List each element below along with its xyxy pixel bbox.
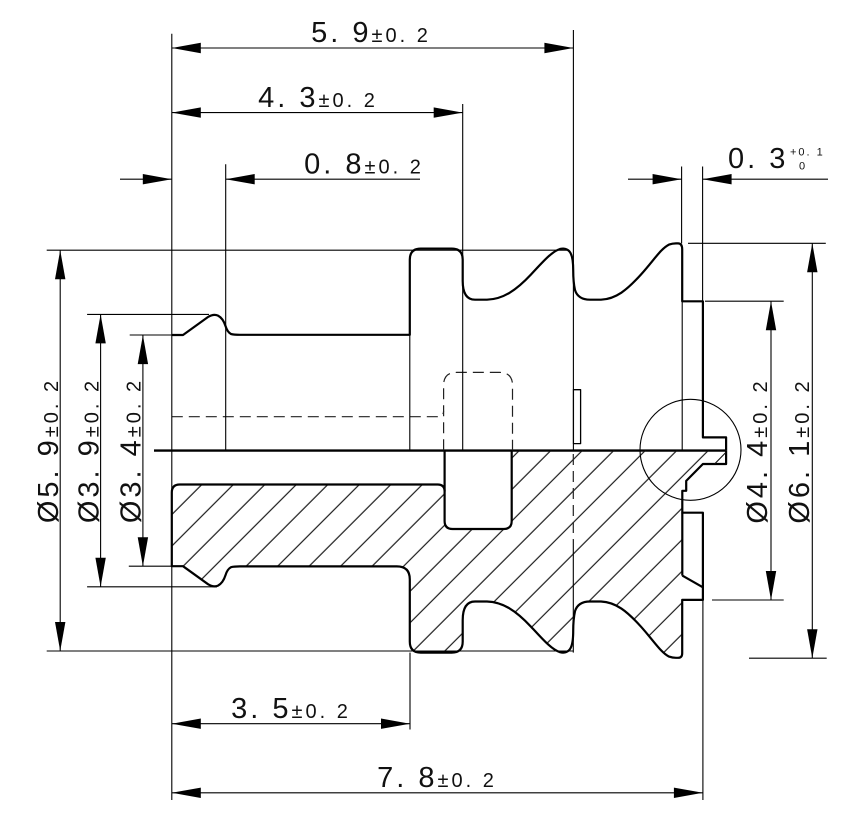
svg-text:Ø5. 9±0. 2: Ø5. 9±0. 2 xyxy=(33,378,65,523)
svg-text:5. 9±0. 2: 5. 9±0. 2 xyxy=(311,17,431,49)
svg-text:4. 3±0. 2: 4. 3±0. 2 xyxy=(258,82,378,114)
svg-text:3. 5±0. 2: 3. 5±0. 2 xyxy=(231,693,351,725)
svg-text:+0. 1: +0. 1 xyxy=(790,147,825,159)
svg-text:Ø6. 1±0. 2: Ø6. 1±0. 2 xyxy=(784,378,816,523)
svg-text:Ø3. 9±0. 2: Ø3. 9±0. 2 xyxy=(73,378,105,523)
svg-text:Ø4. 4±0. 2: Ø4. 4±0. 2 xyxy=(742,378,774,523)
svg-text:0: 0 xyxy=(799,161,807,173)
svg-text:Ø3. 4±0. 2: Ø3. 4±0. 2 xyxy=(116,378,148,523)
svg-text:0. 3: 0. 3 xyxy=(728,143,788,175)
svg-text:0. 8±0. 2: 0. 8±0. 2 xyxy=(304,149,424,181)
svg-text:7. 8±0. 2: 7. 8±0. 2 xyxy=(377,762,497,794)
